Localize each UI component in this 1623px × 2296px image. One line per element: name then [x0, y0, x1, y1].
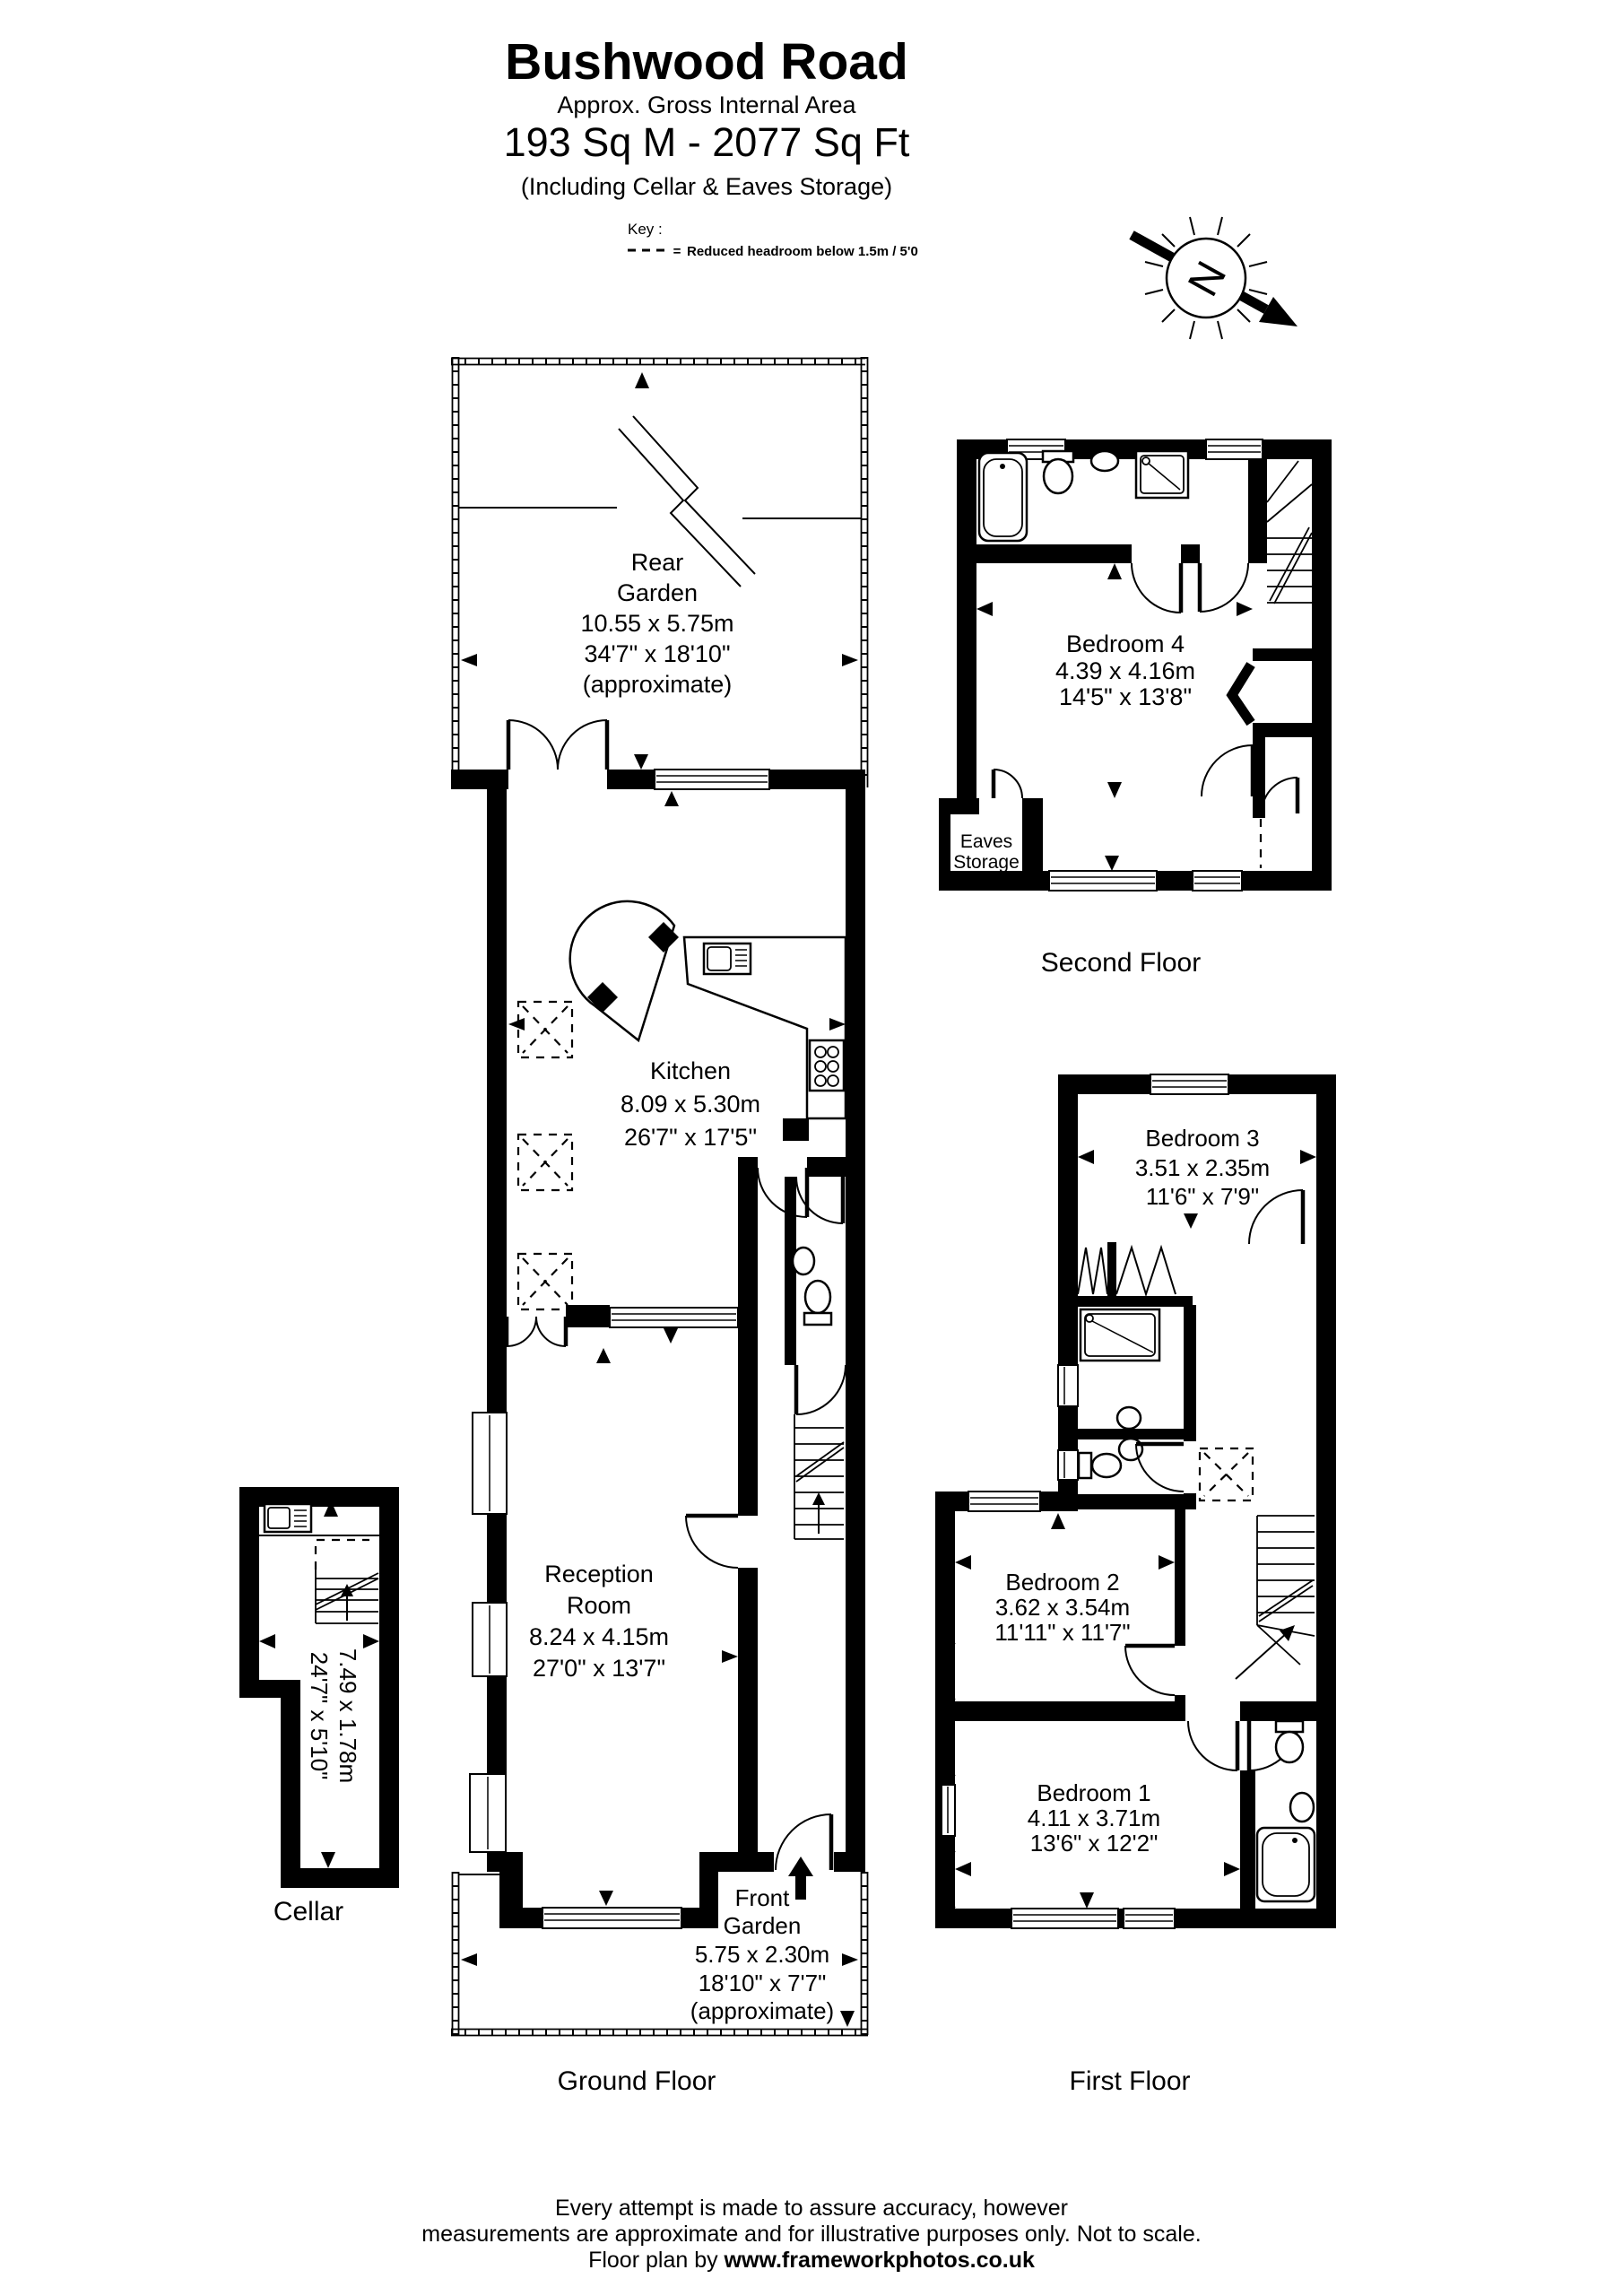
room-dims-metric: 10.55 x 5.75m — [580, 610, 733, 637]
sink-fixture — [1290, 1793, 1314, 1822]
room-dims-imperial: 11'6" x 7'9" — [1146, 1183, 1259, 1210]
cellar-dims-imperial: 24'7" x 5'10" — [306, 1652, 333, 1780]
room-dims-metric: 8.09 x 5.30m — [621, 1091, 760, 1118]
room-dims-imperial: 34'7" x 18'10" — [584, 640, 730, 667]
room-name: Kitchen — [650, 1057, 731, 1084]
floor-label-ground: Ground Floor — [558, 2066, 716, 2096]
room-name: Bedroom 4 — [1066, 631, 1185, 657]
room-name: Garden — [724, 1912, 802, 1939]
room-name: Storage — [953, 852, 1020, 873]
disclaimer-line2: measurements are approximate and for ill… — [421, 2222, 1201, 2247]
bath-fixture — [979, 453, 1027, 541]
room-name: Bedroom 3 — [1145, 1125, 1259, 1152]
window — [470, 1413, 507, 1852]
including-note: (Including Cellar & Eaves Storage) — [521, 173, 892, 200]
floor-label-first: First Floor — [1070, 2066, 1191, 2096]
room-dims-metric: 4.11 x 3.71m — [1028, 1805, 1160, 1831]
room-dims-metric: 8.24 x 4.15m — [529, 1623, 669, 1650]
bath-fixture — [1257, 1828, 1315, 1901]
room-name: Garden — [617, 579, 698, 606]
disclaimer-line1: Every attempt is made to assure accuracy… — [555, 2196, 1068, 2221]
room-note: (approximate) — [690, 1997, 834, 2024]
sink-fixture — [1091, 451, 1118, 471]
kitchen-sink-fixture — [704, 944, 751, 974]
toilet-fixture — [804, 1281, 831, 1325]
room-dims-imperial: 18'10" x 7'7" — [699, 1970, 827, 1996]
shower-fixture — [1136, 451, 1188, 498]
room-name: Bedroom 2 — [1005, 1569, 1119, 1596]
room-dims-imperial: 26'7" x 17'5" — [624, 1124, 757, 1151]
room-dims-imperial: 11'11" x 11'7" — [994, 1619, 1130, 1646]
window — [542, 1908, 681, 1928]
toilet-fixture — [1043, 451, 1073, 493]
toilet-fixture — [1079, 1453, 1121, 1478]
room-name: Room — [567, 1592, 631, 1619]
window — [655, 770, 769, 789]
room-name: Bedroom 1 — [1037, 1779, 1150, 1806]
sink-fixture — [793, 1248, 814, 1274]
toilet-fixture — [1276, 1721, 1303, 1762]
room-dims-metric: 5.75 x 2.30m — [695, 1941, 829, 1968]
hob-fixture — [810, 1040, 844, 1091]
page-title: Bushwood Road — [505, 33, 908, 91]
floor-label-second: Second Floor — [1041, 948, 1201, 978]
floorplan-canvas: Bushwood Road Approx. Gross Internal Are… — [0, 0, 1623, 2296]
shower-fixture — [1081, 1309, 1159, 1361]
key-description: Reduced headroom below 1.5m / 5'0 — [687, 244, 918, 259]
sink-fixture — [1117, 1407, 1141, 1429]
room-note: (approximate) — [583, 671, 733, 698]
room-dims-imperial: 13'6" x 12'2" — [1030, 1830, 1159, 1857]
header-block: Bushwood Road Approx. Gross Internal Are… — [504, 33, 910, 200]
room-dims-metric: 3.62 x 3.54m — [995, 1594, 1130, 1621]
floor-label-cellar: Cellar — [273, 1897, 343, 1926]
room-name: Eaves — [960, 831, 1012, 852]
room-dims-metric: 3.51 x 2.35m — [1135, 1154, 1270, 1181]
credit-line: Floor plan by www.frameworkphotos.co.uk — [588, 2248, 1035, 2273]
sink-fixture — [1119, 1439, 1142, 1460]
page-subtitle: Approx. Gross Internal Area — [557, 91, 856, 118]
room-dims-metric: 4.39 x 4.16m — [1055, 657, 1195, 684]
key-label: Key : — [628, 221, 663, 238]
credit-url: www.frameworkphotos.co.uk — [724, 2248, 1035, 2273]
wall — [783, 1118, 809, 1141]
room-dims-imperial: 27'0" x 13'7" — [533, 1655, 665, 1682]
kitchen-sink-fixture — [265, 1504, 311, 1532]
cellar-dims-metric: 7.49 x 1.78m — [334, 1648, 361, 1783]
room-name: Front — [735, 1884, 790, 1911]
credit-prefix: Floor plan by — [588, 2248, 724, 2273]
room-name: Rear — [631, 549, 684, 576]
room-name: Reception — [544, 1561, 654, 1587]
room-dims-imperial: 14'5" x 13'8" — [1059, 683, 1192, 710]
key-equals: = — [673, 244, 681, 259]
window — [610, 1308, 738, 1327]
gross-area: 193 Sq M - 2077 Sq Ft — [504, 119, 910, 165]
